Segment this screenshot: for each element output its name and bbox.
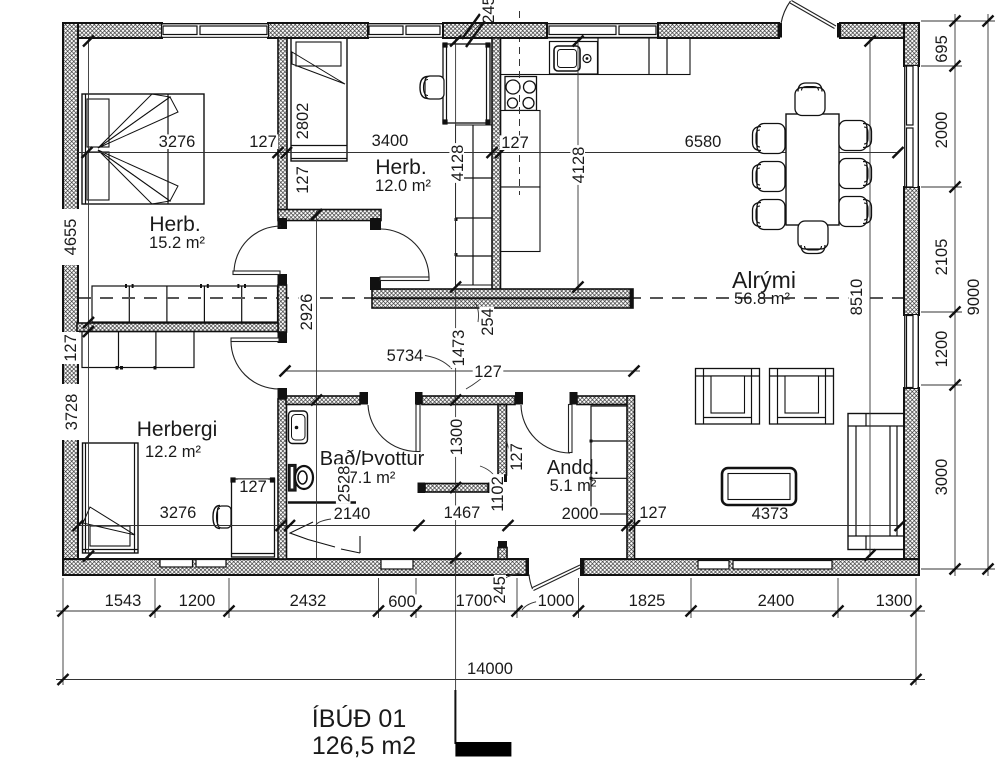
- svg-text:2400: 2400: [758, 592, 795, 610]
- svg-text:15.2 m²: 15.2 m²: [149, 234, 205, 252]
- svg-text:127: 127: [62, 334, 80, 362]
- svg-text:127: 127: [294, 166, 312, 194]
- svg-text:Herbergi: Herbergi: [137, 418, 218, 441]
- svg-text:127: 127: [508, 443, 526, 471]
- svg-text:245: 245: [480, 0, 498, 24]
- svg-text:600: 600: [388, 593, 416, 611]
- svg-text:2926: 2926: [298, 294, 316, 331]
- svg-text:2000: 2000: [933, 112, 951, 149]
- svg-text:1102: 1102: [489, 476, 507, 511]
- svg-text:2528: 2528: [336, 466, 354, 503]
- svg-text:2105: 2105: [933, 239, 951, 276]
- svg-text:127: 127: [501, 134, 529, 152]
- svg-text:6580: 6580: [685, 133, 722, 151]
- svg-text:3400: 3400: [372, 132, 409, 150]
- svg-text:3000: 3000: [933, 459, 951, 496]
- svg-text:3276: 3276: [160, 504, 197, 522]
- svg-text:7.1 m²: 7.1 m²: [349, 469, 396, 487]
- svg-text:5.1 m²: 5.1 m²: [550, 477, 597, 495]
- svg-text:2802: 2802: [294, 103, 312, 140]
- svg-text:8510: 8510: [848, 279, 866, 316]
- svg-text:127: 127: [239, 478, 267, 496]
- svg-text:12.2 m²: 12.2 m²: [145, 443, 201, 461]
- svg-text:56.8 m²: 56.8 m²: [734, 290, 790, 308]
- svg-text:9000: 9000: [965, 279, 983, 316]
- svg-text:1200: 1200: [933, 331, 951, 368]
- svg-text:127: 127: [474, 363, 502, 381]
- svg-text:254: 254: [479, 308, 497, 336]
- svg-text:1543: 1543: [105, 592, 142, 610]
- svg-text:4373: 4373: [752, 505, 789, 523]
- svg-text:12.0 m²: 12.0 m²: [375, 177, 431, 195]
- svg-text:14000: 14000: [467, 660, 513, 678]
- svg-text:1700: 1700: [456, 592, 493, 610]
- svg-text:1825: 1825: [629, 592, 666, 610]
- svg-text:5734: 5734: [387, 347, 424, 365]
- svg-text:Herb.: Herb.: [375, 156, 426, 179]
- svg-text:ÍBÚÐ 01: ÍBÚÐ 01: [312, 704, 406, 733]
- svg-text:1467: 1467: [444, 504, 481, 522]
- svg-text:2432: 2432: [290, 592, 327, 610]
- svg-text:2000: 2000: [562, 505, 599, 523]
- svg-text:1300: 1300: [876, 592, 913, 610]
- svg-text:4128: 4128: [570, 147, 588, 184]
- svg-text:127: 127: [249, 133, 277, 151]
- svg-text:1000: 1000: [538, 592, 575, 610]
- svg-text:3276: 3276: [159, 133, 196, 151]
- svg-text:127: 127: [639, 504, 667, 522]
- svg-text:126,5 m2: 126,5 m2: [312, 732, 416, 760]
- svg-text:1200: 1200: [179, 592, 216, 610]
- svg-text:695: 695: [933, 35, 951, 63]
- svg-text:Herb.: Herb.: [149, 213, 200, 236]
- svg-text:3728: 3728: [63, 394, 81, 431]
- svg-text:1473: 1473: [450, 330, 468, 367]
- svg-text:Andd.: Andd.: [547, 457, 599, 479]
- svg-text:2140: 2140: [334, 505, 371, 523]
- svg-text:4128: 4128: [449, 145, 467, 182]
- svg-text:245: 245: [491, 576, 509, 604]
- svg-text:1300: 1300: [448, 419, 466, 456]
- svg-text:4655: 4655: [62, 219, 80, 256]
